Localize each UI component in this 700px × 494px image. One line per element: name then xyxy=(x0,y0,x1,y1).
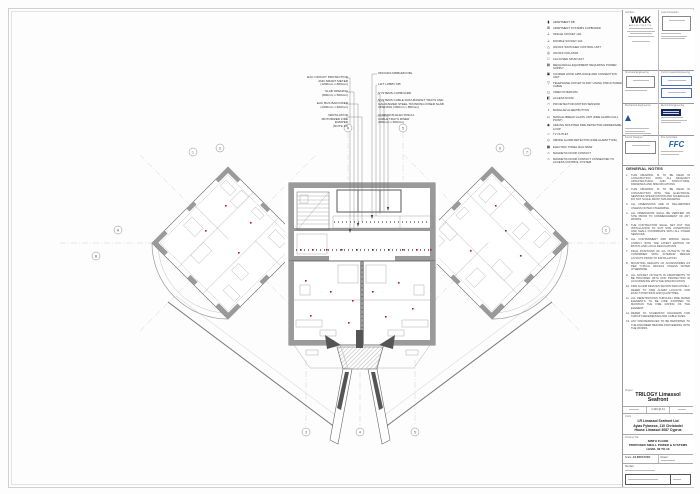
grid-bubble: B xyxy=(92,252,100,260)
grid-bubble: 5 xyxy=(399,124,407,132)
grid-bubble: 6 xyxy=(496,144,504,152)
legend-label: ON/OFF SWITCHED CONTROL UNIT xyxy=(553,46,601,49)
general-note: ALL PENETRATIONS THROUGH FIRE RATED ELEM… xyxy=(626,297,690,310)
svg-text:4: 4 xyxy=(359,430,361,434)
annotation-systems-cupboard: SYSTEMS CUPBOARD xyxy=(378,92,411,96)
legend-row: ⌂ MAGNETIC DOOR CONTACT xyxy=(546,152,624,156)
legend-row: ⊥ DOUBLE SOCKET 13A xyxy=(546,40,624,44)
structural-stamp xyxy=(626,76,655,88)
symbol-legend: ▮ APARTMENT DB ⊞ APARTMENT SYSTEMS CUPBO… xyxy=(546,21,624,167)
grid-bubble: 1 xyxy=(189,148,197,156)
legend-row: ▽ TELEPHONE OUTLET IN DRY LINING STRUCTU… xyxy=(546,82,624,88)
general-note: ALL CONTAINMENT AND WIRING SHALL COMPLY … xyxy=(626,238,690,248)
general-note: THIS DRAWING IS TO BE READ IN CONJUNCTIO… xyxy=(626,174,690,187)
legend-row: ▤ MECHANICAL EQUIPMENT REQUIRING POWER S… xyxy=(546,64,624,70)
scale-value: AS INDICATED xyxy=(633,456,651,459)
general-note: FINAL POSITIONS OF ALL OUTLETS TO BE CON… xyxy=(626,250,690,260)
legend-symbol-icon: △ xyxy=(546,46,551,50)
legend-symbol-icon: ◎ xyxy=(546,52,551,56)
legend-symbol-icon: ▮ xyxy=(546,21,551,25)
legend-label: DOUBLE SOCKET 13A xyxy=(553,40,582,43)
civil-cell: Civil & Coastal Engineering xyxy=(658,70,694,103)
mechanical-label: Mechanical Engineering xyxy=(625,105,656,107)
general-note: FIRE ALARM DEVICES SHOWN INDICATIVELY. R… xyxy=(626,285,690,295)
project-info-block: Project TRILOGY Limassol Seafront 1:100 … xyxy=(622,388,693,487)
legend-label: MECHANICAL EQUIPMENT REQUIRING POWER SUP… xyxy=(553,64,624,70)
legend-row: ▦ ELECTRIC TOWEL RAIL 500W xyxy=(546,146,624,150)
mechanical-consultant-logo xyxy=(625,115,631,121)
legend-symbol-icon: ▭ xyxy=(546,116,551,120)
general-notes: GENERAL NOTES THIS DRAWING IS TO BE READ… xyxy=(626,166,690,332)
approval-stamp xyxy=(662,16,691,31)
civil-stamp-2 xyxy=(661,88,692,98)
grid-bubble: 5 xyxy=(411,428,419,436)
legend-label: ON/OFF ISOLATOR xyxy=(553,52,578,55)
legend-symbol-icon: ⊞ xyxy=(546,27,551,31)
legend-symbol-icon: ▽ xyxy=(546,82,551,86)
drawn-cell: Drawn: xyxy=(658,455,694,464)
legend-symbol-icon: ▦ xyxy=(546,146,551,150)
electrical-cell: Electrical Engineering xyxy=(658,103,694,135)
legend-symbol-icon: ◉ xyxy=(546,124,551,128)
legend-symbol-icon: ▪ xyxy=(546,109,551,113)
fire-label: Fire Consultant xyxy=(661,137,692,139)
legend-label: SMOKE ALARM DETECTOR (FIRE ALARM TYPE) xyxy=(553,139,617,142)
legend-label: TELEPHONE OUTLET IN DRY LINING STRUCTURE… xyxy=(553,82,624,88)
legend-row: △ ON/OFF SWITCHED CONTROL UNIT xyxy=(546,46,624,50)
legend-label: MAGNETIC DOOR CONTACT CONNECTED TO ACCES… xyxy=(553,158,624,164)
scale-chip: 1:100 @ A1 xyxy=(646,407,670,414)
lead-consultant-label: Lead Consultant xyxy=(661,12,692,14)
legend-symbol-icon: □ xyxy=(546,58,551,62)
lift-shafts xyxy=(337,190,401,212)
legend-row: □ 13A FUSED SPUR UNIT xyxy=(546,58,624,62)
svg-text:3: 3 xyxy=(305,430,307,434)
legend-row: ▪ BURGLAR ALARM BUTTON xyxy=(546,109,624,113)
annotation-commons-cable-riser: COMMONS ELECTRICAL CABLE TRAYS RISER (80… xyxy=(378,114,414,125)
legend-symbol-icon: ⌂ xyxy=(546,152,551,156)
civil-label: Civil & Coastal Engineering xyxy=(661,72,692,74)
drawing-title: NINTH FLOOR PROPOSED SMALL POWER & SYSTE… xyxy=(623,439,693,454)
scale-cell: Scale: AS INDICATED xyxy=(623,455,658,464)
interior-label: Interior Designer xyxy=(625,137,656,139)
general-note: ALL DIMENSIONS SHALL BE VERIFIED ON SITE… xyxy=(626,212,690,222)
legend-label: APARTMENT DB xyxy=(553,21,575,24)
legend-label: CEILING MOUNTED FIRE DETECTOR ADDRESSABL… xyxy=(553,124,624,130)
electrical-consultant-logo xyxy=(661,109,681,116)
legend-symbol-icon: ▣ xyxy=(546,73,551,77)
legend-symbol-icon: ▤ xyxy=(546,64,551,68)
grid-bubble: C xyxy=(602,226,610,234)
legend-row: ◻ VIDEO INTERCOM xyxy=(546,91,624,95)
legend-symbol-icon: ⊥ xyxy=(546,33,551,37)
general-note: REFER TO SCHEMATIC DIAGRAMS FOR CIRCUIT … xyxy=(626,312,690,318)
drawing-number-value xyxy=(626,475,671,484)
svg-text:2: 2 xyxy=(219,146,221,150)
legend-row: ○ TV OUTLET xyxy=(546,133,624,137)
drawing-number-bar xyxy=(625,474,691,485)
rev-chip xyxy=(669,407,693,414)
general-note: THIS DRAWING IS TO BE READ IN CONJUNCTIO… xyxy=(626,188,690,201)
legend-symbol-icon: ○ xyxy=(546,133,551,137)
project-title: TRILOGY Limassol Seafront xyxy=(623,392,693,406)
legend-row: ◉ CEILING MOUNTED FIRE DETECTOR ADDRESSA… xyxy=(546,124,624,130)
architect-cell: Architect WKK ARCHITECTS xyxy=(623,10,658,70)
grid-bubble: 2 xyxy=(216,144,224,152)
legend-symbol-icon: ∩ xyxy=(546,103,551,107)
annotation-systems-cable-riser: SYSTEMS CABLE DATA BASKET TRAYS AND GALV… xyxy=(378,99,444,110)
revision-value xyxy=(671,475,690,484)
client-name: LR Limassol Seafront Ltd Ayias Fylaxeos,… xyxy=(623,418,693,434)
interior-cell: Interior Designer xyxy=(623,135,658,165)
legend-label: VIDEO INTERCOM xyxy=(553,91,577,94)
grid-bubble: 7 xyxy=(523,148,531,156)
status-chip xyxy=(623,407,646,414)
legend-row: ⊞ APARTMENT SYSTEMS CUPBOARD xyxy=(546,27,624,31)
annotation-slab-opening: SLAB OPENING (800mm x 500mm) xyxy=(322,90,348,97)
general-note: MOUNTING HEIGHTS OF ACCESSORIES AS PER T… xyxy=(626,262,690,272)
interior-stamp xyxy=(625,141,656,154)
grid-bubble: 3 xyxy=(302,428,310,436)
structural-label: Structural Engineering xyxy=(625,72,656,74)
legend-label: APARTMENT SYSTEMS CUPBOARD xyxy=(553,27,601,30)
legend-label: TV OUTLET xyxy=(553,133,568,136)
general-note: ALL SOCKET OUTLETS IN APARTMENTS TO BE P… xyxy=(626,274,690,284)
svg-text:5: 5 xyxy=(414,430,416,434)
wkk-logo: WKK xyxy=(625,16,656,25)
legend-row: ▮ APARTMENT DB xyxy=(546,21,624,25)
legend-row: ◎ ON/OFF ISOLATOR xyxy=(546,52,624,56)
number-cell: Number xyxy=(623,464,693,473)
general-note: THE CONTRACTOR SHALL SET OUT THE INSTALL… xyxy=(626,224,690,237)
general-note: ALL DIMENSIONS ARE IN MILLIMETRES UNLESS… xyxy=(626,203,690,209)
annotation-lift-lobby-db: LIFT LOBBY DB xyxy=(378,83,401,87)
legend-row: ◇ SMOKE ALARM DETECTOR (FIRE ALARM TYPE) xyxy=(546,139,624,143)
legend-label: COOKER HOOD APPLIANCE AND CONNECTION UNI… xyxy=(553,73,624,79)
legend-row: ⌂ MAGNETIC DOOR CONTACT CONNECTED TO ACC… xyxy=(546,158,624,164)
legend-symbol-icon: ⌂ xyxy=(546,158,551,162)
legend-label: MAGNETIC DOOR CONTACT xyxy=(553,152,591,155)
legend-label: MANUAL BREAK GLASS UNIT (FIRE ALARM CALL… xyxy=(553,116,624,122)
civil-stamp-1 xyxy=(661,76,692,86)
ffc-logo: FFC xyxy=(661,141,692,149)
annotation-ventilation-damper: VENTILATION MOTORIZED FIRE DAMPER (NOTE … xyxy=(322,114,348,129)
legend-row: ▣ COOKER HOOD APPLIANCE AND CONNECTION U… xyxy=(546,73,624,79)
grid-bubble: A xyxy=(114,226,122,234)
legend-symbol-icon: ◇ xyxy=(546,139,551,143)
legend-label: PIR DETECTOR (MOTION SENSOR) xyxy=(553,103,600,106)
legend-symbol-icon: ⊥ xyxy=(546,40,551,44)
legend-label: ACCESS DOOR xyxy=(553,97,574,100)
svg-text:5: 5 xyxy=(402,126,404,130)
lead-consultant-cell: Lead Consultant xyxy=(658,10,694,70)
annotation-eac-circuit-protection: EAC CIRCUIT PROTECTION AND SMART METER (… xyxy=(307,76,348,87)
legend-label: 13A FUSED SPUR UNIT xyxy=(553,58,584,61)
legend-row: ▭ MANUAL BREAK GLASS UNIT (FIRE ALARM CA… xyxy=(546,116,624,122)
annotation-offices-mdb: OFFICES MDBs/MCCBs xyxy=(378,72,412,76)
electrical-label: Electrical Engineering xyxy=(661,105,692,107)
wkk-logo-subtitle: ARCHITECTS xyxy=(625,25,656,27)
general-notes-title: GENERAL NOTES xyxy=(626,166,690,171)
legend-row: ⊥ SINGLE SOCKET 13A xyxy=(546,33,624,37)
legend-label: BURGLAR ALARM BUTTON xyxy=(553,109,589,112)
structural-cell: Structural Engineering xyxy=(623,70,658,103)
legend-row: ∩ PIR DETECTOR (MOTION SENSOR) xyxy=(546,103,624,107)
annotation-eac-busbar-riser: EAC BUS BAR RISER (1000mm x 600mm) xyxy=(317,102,348,109)
grid-bubble: 4 xyxy=(356,428,364,436)
mechanical-cell: Mechanical Engineering xyxy=(623,103,658,135)
legend-symbol-icon: ◧ xyxy=(546,97,551,101)
legend-label: ELECTRIC TOWEL RAIL 500W xyxy=(553,146,592,149)
general-note: ANY DISCREPANCIES TO BE REPORTED TO THE … xyxy=(626,320,690,330)
svg-text:1: 1 xyxy=(192,150,194,154)
legend-symbol-icon: ◻ xyxy=(546,91,551,95)
legend-row: ◧ ACCESS DOOR xyxy=(546,97,624,101)
fire-cell: Fire Consultant FFC xyxy=(658,135,694,165)
drawing-sheet: 1 2 4 5 6 7 A B C D 3 4 5 EAC CIRCUIT PR… xyxy=(0,0,700,494)
svg-text:6: 6 xyxy=(499,146,501,150)
svg-text:7: 7 xyxy=(526,150,528,154)
legend-label: SINGLE SOCKET 13A xyxy=(553,33,581,36)
